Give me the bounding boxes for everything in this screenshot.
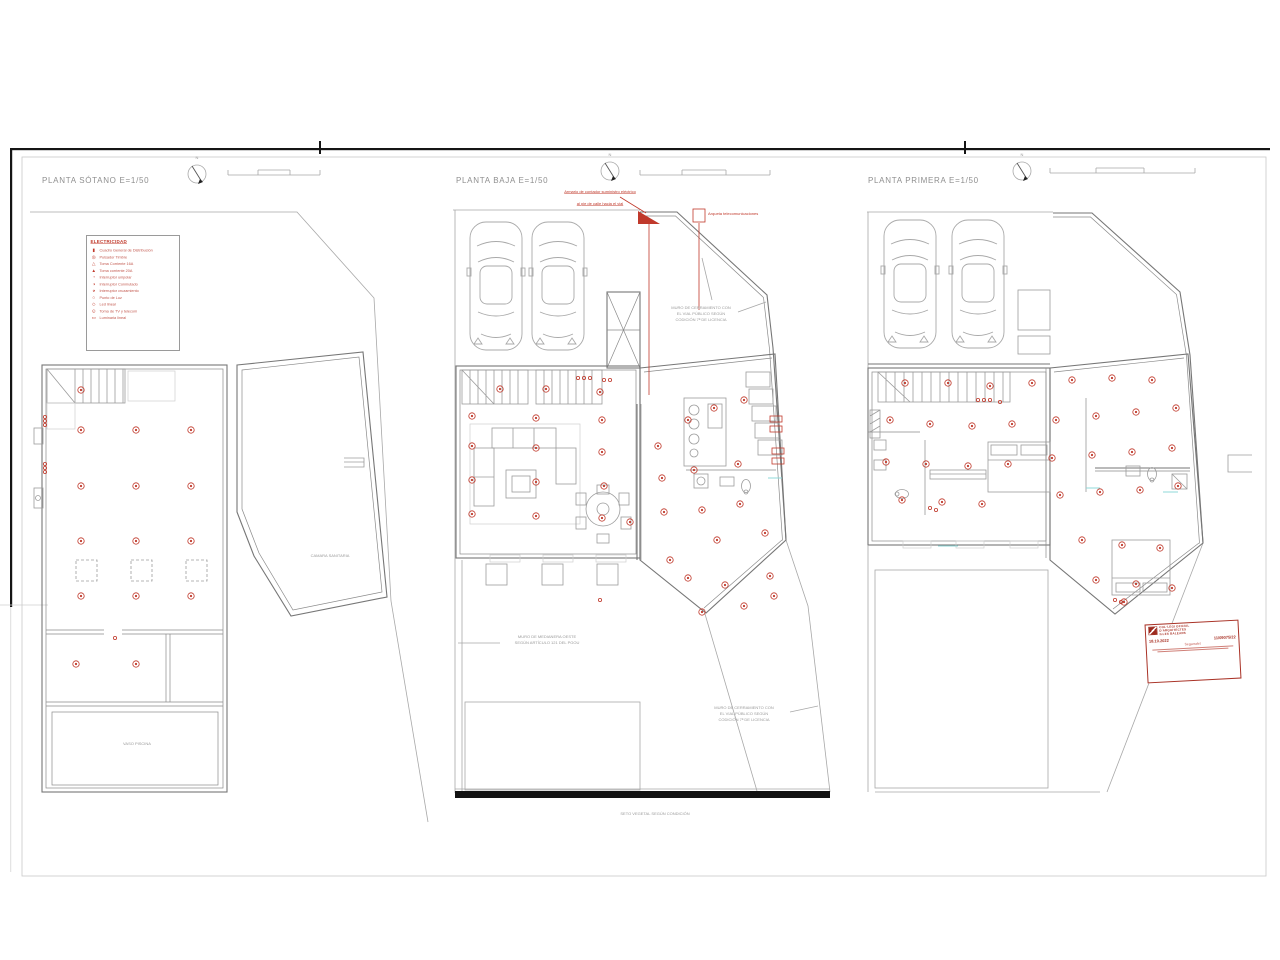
interruptor-unipolar-icon: ◔	[91, 275, 98, 280]
note-muro-cerramiento-norte: MURO DE CERRAMIENTO CON EL VIAL PÚBLICO …	[659, 305, 744, 323]
note-muro-cerramiento-sur: MURO DE CERRAMIENTO CON EL VIAL PÚBLICO …	[699, 705, 789, 723]
architects-college-stamp: COL·LEGI OFICIAL D'ARQUITECTES ILLES BAL…	[1145, 620, 1242, 684]
plan-title-primera: PLANTA PRIMERA E=1/50	[868, 176, 979, 185]
note-armario-line2: al pie de calle hacia el vial	[520, 201, 680, 207]
planters	[486, 564, 618, 585]
living-room-furniture	[470, 424, 580, 524]
electrical-symbols-primera	[883, 375, 1181, 605]
legend-item-label: Cuadro General de Distribución	[100, 248, 153, 253]
legend-item: ◑Interruptor Conmutado	[91, 281, 176, 288]
legend-item-label: Toma Corriente 16A	[100, 262, 134, 267]
legend-item-label: Toma de TV y telecom	[100, 309, 138, 314]
cuadro-general-distribucion-icon: ▮	[91, 248, 98, 253]
interruptor-conmutado-icon: ◑	[91, 282, 98, 287]
north-label-primera: N	[992, 152, 1052, 158]
toma-corriente-20a-icon: ▲	[91, 268, 98, 273]
note-armario-contador: Armario de contador suministro eléctrico…	[520, 183, 680, 213]
note-armario-line1: Armario de contador suministro eléctrico	[520, 189, 680, 195]
luminaria-lineal-icon: ▭	[91, 316, 98, 321]
shaft-baja	[607, 292, 640, 368]
north-label-baja: N	[580, 152, 640, 158]
college-logo-icon	[1148, 626, 1157, 635]
legend-item-label: Interruptor Conmutado	[100, 282, 138, 287]
legend-item-label: Toma corriente 20A	[100, 268, 133, 273]
section-mark	[1228, 455, 1252, 472]
legend-item: ⊙Toma de TV y telecom	[91, 308, 176, 315]
stamp-org-name: COL·LEGI OFICIAL D'ARQUITECTES ILLES BAL…	[1159, 625, 1190, 637]
punto-de-luz-icon: ○	[91, 295, 98, 300]
bathroom-fixtures-primera	[870, 410, 1187, 499]
toma-tv-telecom-icon: ⊙	[91, 309, 98, 314]
legend-title: ELECTRICIDAD	[91, 239, 176, 244]
drawing-sheet: .w{stroke:#767676;fill:none;stroke-width…	[0, 0, 1280, 960]
interruptor-cruzamiento-icon: ◕	[91, 289, 98, 294]
room-label-vaso-piscina: VASO PISCINA	[97, 741, 177, 747]
electrical-symbols-baja	[469, 376, 777, 615]
legend-item-label: Punto de Luz	[100, 295, 122, 300]
scale-bar	[228, 168, 1195, 175]
plan-title-sotano: PLANTA SÓTANO E=1/50	[42, 176, 149, 185]
legend-item: ◕Interruptor cruzamiento	[91, 288, 176, 295]
note-seto-vegetal: SETO VEGETAL SEGÚN CONDICIÓN	[585, 811, 725, 817]
legend-item: △Toma Corriente 16A	[91, 261, 176, 268]
legend-item: ▲Toma corriente 20A	[91, 267, 176, 274]
kitchen-fixtures	[684, 372, 784, 466]
legend-item: ▮Cuadro General de Distribución	[91, 247, 176, 254]
north-label-sotano: N	[167, 155, 227, 161]
stairs-baja	[462, 370, 602, 404]
electricity-legend: ELECTRICIDAD ▮Cuadro General de Distribu…	[86, 235, 180, 351]
column-symbols	[76, 560, 207, 581]
legend-item-label: Pulsador Timbre	[100, 255, 128, 260]
toma-corriente-16a-icon: △	[91, 262, 98, 267]
legend-item-label: Interruptor unipolar	[100, 275, 132, 280]
legend-item: ◎Pulsador Timbre	[91, 254, 176, 261]
room-label-camara-sanitaria: CAMARA SANITARIA	[280, 553, 380, 559]
sheet-frame	[0, 141, 1270, 876]
led-lineal-icon: ◇	[91, 302, 98, 307]
legend-item-label: Luminaria lineal	[100, 316, 127, 321]
legend-item: ○Punto de Luz	[91, 294, 176, 301]
bathroom-baja	[686, 470, 776, 494]
legend-item: ▭Luminaria lineal	[91, 315, 176, 322]
legend-item: ◔Interruptor unipolar	[91, 274, 176, 281]
legend-item: ◇Led lineal	[91, 301, 176, 308]
pulsador-timbre-icon: ◎	[91, 255, 98, 260]
note-muro-medianera: MURO DE MEDIANERA OESTE SEGÚN ARTÍCULO 1…	[497, 634, 597, 646]
camara-sanitaria-outline	[237, 352, 387, 616]
legend-item-label: Interruptor cruzamiento	[100, 289, 139, 294]
dining-table	[576, 485, 631, 543]
stairs-sotano	[47, 369, 125, 429]
legend-item-label: Led lineal	[100, 302, 116, 307]
note-arqueta: Arqueta telecomunicaciones	[708, 211, 858, 217]
plan-primera-linework	[867, 212, 1252, 792]
seto-hedge-bar	[455, 791, 830, 798]
